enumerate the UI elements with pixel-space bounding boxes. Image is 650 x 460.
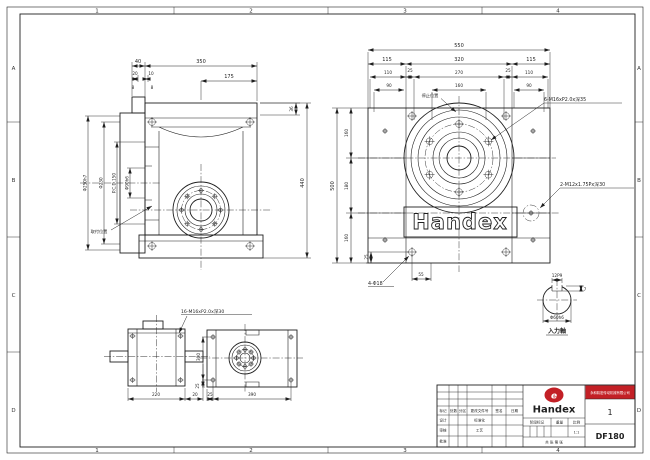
side-dim-25a: 25 <box>407 68 413 73</box>
title-block: 标记 处数 分区 更改文件号 签名 日期 设计 标准化 审核 工艺 批准 e H… <box>437 385 635 447</box>
side-dim-270: 270 <box>455 70 463 75</box>
handex-nameplate-text: Handex <box>412 210 508 234</box>
top-taps-note: 16-M16xP2.0x深30 <box>181 308 224 315</box>
front-leader-mount-label: 取付位置 <box>91 228 108 235</box>
rev-label-zone: 分区 <box>459 408 467 413</box>
side-dim-90r: 90 <box>526 83 532 88</box>
bottom-side-dim-220: 220 <box>152 392 160 397</box>
front-dim-d90: Φ90h6 <box>125 176 130 190</box>
side-dim-110r: 110 <box>525 70 533 75</box>
side-dim-115r: 115 <box>526 57 536 63</box>
zone-row-d-right: D <box>637 408 641 414</box>
foot-holes-note: 4-Φ18 <box>368 281 383 287</box>
zone-col-1-top: 1 <box>95 9 99 15</box>
zone-row-b-right: B <box>637 178 641 184</box>
front-view: 40 350 20 10 8 8 175 36 440 Φ250h7 Φ230 … <box>80 59 311 270</box>
side-dim-160t: 160 <box>344 129 349 137</box>
title-revision-grid: 标记 处数 分区 更改文件号 签名 日期 设计 标准化 审核 工艺 批准 <box>437 385 523 447</box>
zone-row-c-left: C <box>12 293 16 299</box>
title-brand-text: Handex <box>533 405 576 416</box>
zone-col-4-top: 4 <box>556 9 560 15</box>
side-dim-180: 180 <box>344 182 349 190</box>
weight-label: 重量 <box>556 420 564 425</box>
input-shaft-label: 入力軸 <box>547 327 566 335</box>
front-view-outline <box>120 97 263 258</box>
front-dim-40: 40 <box>135 59 141 65</box>
zone-row-b-left: B <box>12 178 16 184</box>
zone-row-a-left: A <box>12 66 16 72</box>
input-shaft-dimensions: 12P9 7 Φ60h6 <box>543 273 587 323</box>
side-taps-note: 2-M12x1.75Px深30 <box>560 181 605 188</box>
front-dim-pcd: P.C.D.150 <box>112 173 117 193</box>
drawing-sheet: 1 2 3 4 1 2 3 4 A B C D A B C D <box>0 0 650 460</box>
side-annotations: 停止位置 6-M16xP2.0x深35 2-M12x1.75Px深30 4-Φ1… <box>368 92 634 287</box>
front-dim-350: 350 <box>196 59 206 65</box>
side-dim-320: 320 <box>454 57 464 63</box>
side-dim-25v: 25 <box>364 254 369 260</box>
zone-row-a-right: A <box>637 66 641 72</box>
front-dim-d250: Φ250h7 <box>83 174 88 191</box>
side-dim-90l: 90 <box>386 83 392 88</box>
stage-label: 阶段标记 <box>530 420 545 425</box>
sheet-number: 1 <box>607 408 612 417</box>
bottom-view-dim-25h: 25 <box>207 392 213 397</box>
bottom-view-outline <box>200 324 303 393</box>
role-process-label: 工艺 <box>476 428 484 433</box>
input-shaft-view: 12P9 7 Φ60h6 入力軸 <box>537 273 587 335</box>
front-dim-10: 10 <box>148 71 154 76</box>
bottom-view-dimensions: 300 25 25 390 <box>195 337 291 401</box>
pages-label: 共 张 第 张 <box>545 440 563 445</box>
front-dim-175: 175 <box>224 74 234 80</box>
rev-label-sign: 签名 <box>495 408 503 413</box>
shaft-dim-depth: 7 <box>584 287 587 292</box>
handex-logo-e: e <box>551 392 557 402</box>
side-dimensions: 550 115 320 115 110 25 270 25 110 90 160… <box>330 43 550 281</box>
zone-col-3-top: 3 <box>403 9 407 15</box>
side-view: Handex 550 115 320 115 110 25 270 25 110 <box>330 43 634 287</box>
role-design-label: 设计 <box>439 418 447 423</box>
handex-nameplate: Handex <box>404 207 517 237</box>
front-dim-8b: 8 <box>151 85 154 90</box>
bottom-view-dim-390: 390 <box>248 392 256 397</box>
zone-col-2-bottom: 2 <box>249 448 253 454</box>
stop-position-label: 停止位置 <box>422 92 439 99</box>
bottom-view-dim-25v: 25 <box>195 383 200 389</box>
role-approve-label: 批准 <box>439 439 447 444</box>
zone-col-1-bottom: 1 <box>95 448 99 454</box>
company-name: 永和精密传动机械有限公司 <box>590 390 630 395</box>
bottom-view: 300 25 25 390 <box>195 324 303 401</box>
zone-col-2-top: 2 <box>249 9 253 15</box>
rev-label-date: 日期 <box>511 408 519 413</box>
front-dim-36: 36 <box>289 106 294 112</box>
bottom-side-outline <box>104 315 210 392</box>
rev-label-change-doc: 更改文件号 <box>471 408 489 413</box>
side-dim-110l: 110 <box>384 70 392 75</box>
front-dim-8a: 8 <box>132 85 135 90</box>
side-dim-500: 500 <box>330 181 336 191</box>
bottom-view-dim-300: 300 <box>196 353 201 361</box>
zone-col-3-bottom: 3 <box>403 448 407 454</box>
shaft-dim-dia: Φ60h6 <box>550 315 564 320</box>
front-dim-440: 440 <box>300 178 306 188</box>
role-std-label: 标准化 <box>474 418 485 423</box>
side-dim-550: 550 <box>454 43 464 49</box>
side-centerlines <box>358 96 560 272</box>
role-check-label: 审核 <box>439 428 447 433</box>
title-logo-area: e Handex 阶段标记 重量 比例 1:1 共 张 第 张 <box>523 388 585 445</box>
scale-label: 比例 <box>573 420 581 425</box>
rev-label-mark: 标记 <box>439 408 447 413</box>
zone-col-4-bottom: 4 <box>556 448 560 454</box>
bottom-side-dim-20: 20 <box>192 392 198 397</box>
shaft-dim-key: 12P9 <box>552 273 563 278</box>
side-dim-115l: 115 <box>382 57 392 63</box>
side-dim-160c: 160 <box>455 83 463 88</box>
title-id-area: 永和精密传动机械有限公司 1 DF180 <box>585 386 635 442</box>
flange-bolts-note: 6-M16xP2.0x深35 <box>544 96 586 103</box>
front-dim-20: 20 <box>132 71 138 76</box>
rev-label-count: 处数 <box>450 408 458 413</box>
cad-drawing: 1 2 3 4 1 2 3 4 A B C D A B C D <box>0 0 650 460</box>
drawing-number: DF180 <box>596 432 625 441</box>
zone-row-c-right: C <box>637 293 641 299</box>
side-dim-160b: 160 <box>344 234 349 242</box>
side-dim-55: 55 <box>418 272 424 277</box>
side-dim-25b: 25 <box>505 68 511 73</box>
scale-value: 1:1 <box>574 431 580 435</box>
front-dim-d230: Φ230 <box>99 177 104 189</box>
front-dimensions: 40 350 20 10 8 8 175 36 440 Φ250h7 Φ230 … <box>83 59 312 258</box>
zone-row-d-left: D <box>11 408 15 414</box>
